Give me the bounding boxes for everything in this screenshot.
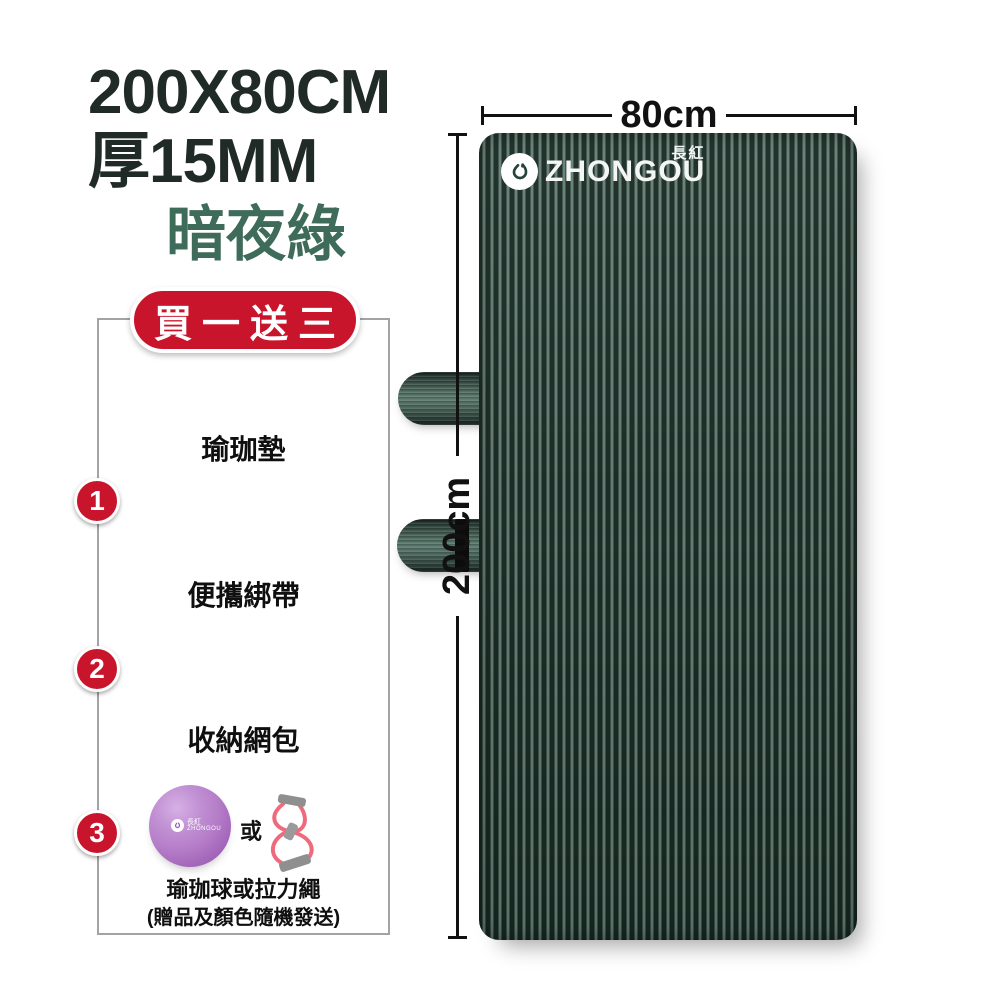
size-title: 200X80CM xyxy=(88,58,424,127)
brand-logo-icon xyxy=(171,819,184,832)
ball-brand-logo: 長紅 ZHONGOU xyxy=(171,819,221,832)
thickness-title: 厚15MM xyxy=(88,127,424,196)
yoga-ball-image: 長紅 ZHONGOU xyxy=(149,785,231,867)
ball-brand-en: ZHONGOU xyxy=(187,826,221,832)
gift3-number-badge: 3 xyxy=(74,810,120,856)
brand-logo-icon xyxy=(501,153,538,190)
yoga-mat-preview: 長紅 ZHONGOU xyxy=(479,133,857,940)
gift2-number-badge: 2 xyxy=(74,646,120,692)
mat-brand-cn: 長紅 xyxy=(671,142,705,163)
gift-note: (贈品及顏色隨機發送) xyxy=(97,901,390,930)
main-item-label: 瑜珈墊 xyxy=(97,428,390,468)
headline-block: 200X80CM 厚15MM 暗夜綠 xyxy=(88,58,424,266)
gift2-label: 收納網包 xyxy=(97,719,390,759)
resistance-band-image xyxy=(262,792,320,872)
height-label: 200cm xyxy=(438,477,476,595)
gift1-number-badge: 1 xyxy=(74,478,120,524)
bundle-badge: 買一送三 xyxy=(130,287,360,353)
dimension-tick xyxy=(854,106,857,125)
mat-brand-logo: 長紅 ZHONGOU xyxy=(501,153,705,190)
dimension-tick xyxy=(448,936,467,939)
gift1-label: 便攜綁帶 xyxy=(97,574,390,614)
ball-brand-cn: 長紅 xyxy=(187,819,221,826)
color-name: 暗夜綠 xyxy=(88,203,424,266)
product-promo-image: 200X80CM 厚15MM 暗夜綠 買一送三 瑜珈墊 + 便攜綁帶 + 收納網… xyxy=(0,0,1000,1000)
bundle-badge-label: 買一送三 xyxy=(144,293,346,348)
width-dimension: 80cm xyxy=(481,102,857,128)
height-dimension: 200cm xyxy=(445,133,469,939)
or-text: 或 xyxy=(240,814,262,846)
width-label: 80cm xyxy=(620,96,717,134)
gift3-label: 瑜珈球或拉力繩 xyxy=(97,872,390,904)
